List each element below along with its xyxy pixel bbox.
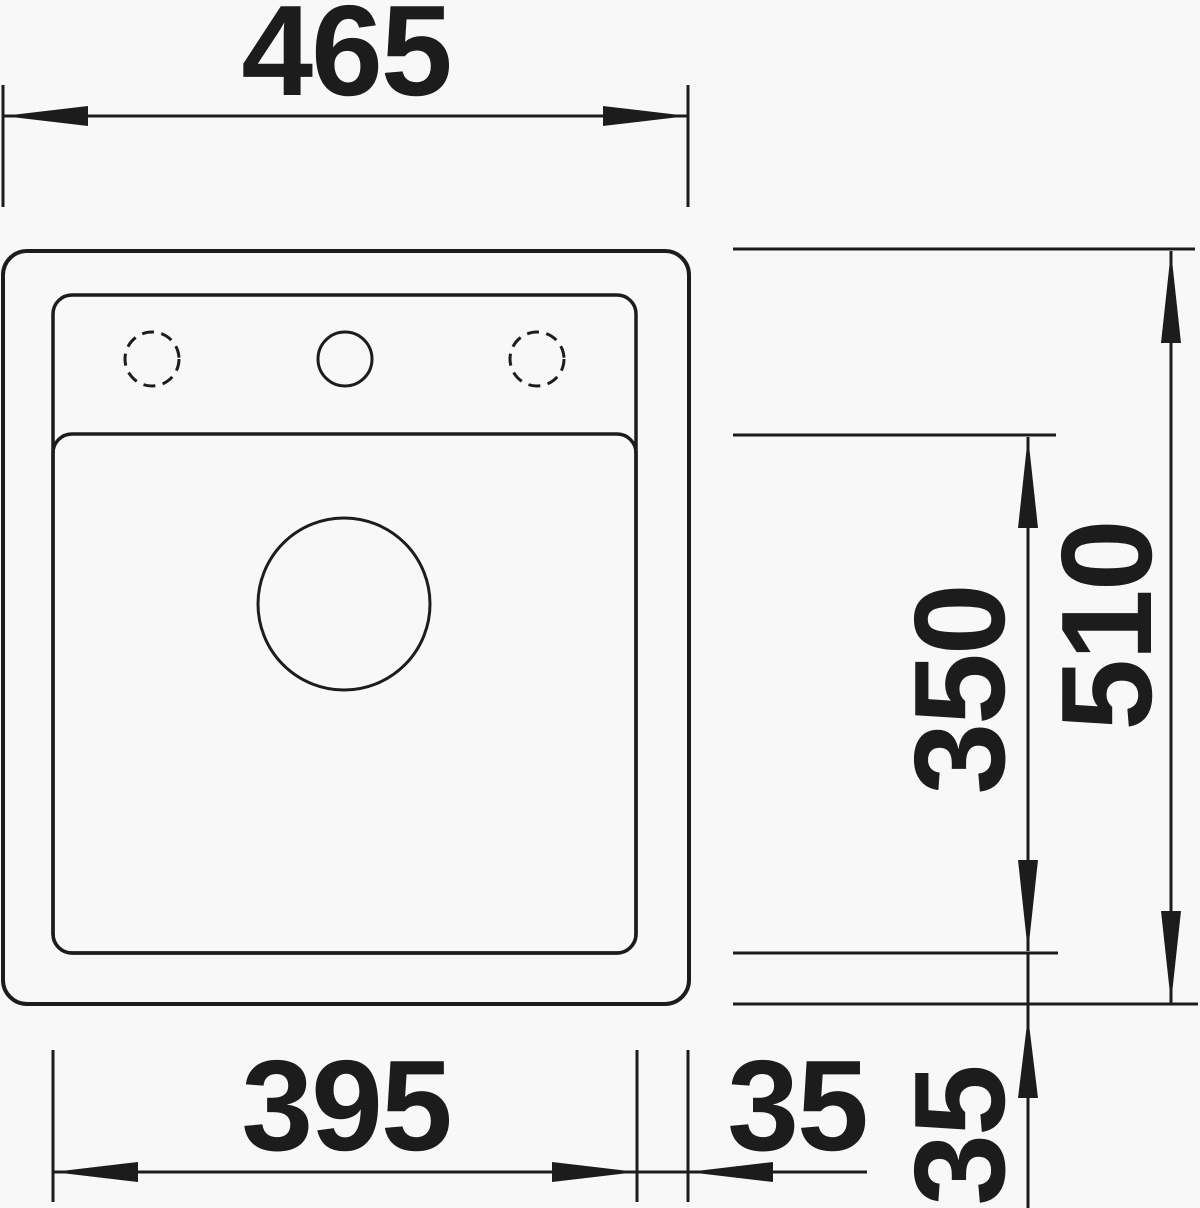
dim-label-bowl-width: 395 xyxy=(241,1034,450,1178)
arrowhead-down-icon xyxy=(1161,911,1181,1003)
sink-outline-group xyxy=(3,251,689,1004)
dim-bowl-depth: 350 xyxy=(733,435,1058,953)
arrowhead-up-icon xyxy=(1018,436,1038,528)
sink-rim-inner-edge xyxy=(53,295,636,953)
arrowhead-up-icon xyxy=(1161,251,1181,343)
sink-dimension-drawing: 465 510 350 35 xyxy=(0,0,1200,1208)
dim-label-rim-offset-bottom: 35 xyxy=(888,1066,1032,1206)
arrowhead-right-icon xyxy=(552,1162,637,1182)
dim-label-overall-width: 465 xyxy=(241,0,450,123)
sink-outer-edge xyxy=(3,251,689,1004)
dim-overall-width: 465 xyxy=(3,0,688,207)
dim-label-rim-offset-right: 35 xyxy=(727,1034,867,1178)
dim-label-bowl-depth: 350 xyxy=(888,585,1032,794)
faucet-hole-center-icon xyxy=(318,332,372,386)
dim-rim-offset-bottom: 35 xyxy=(888,952,1038,1208)
dim-bottom-group: 395 35 xyxy=(53,1034,867,1202)
drain-hole-icon xyxy=(258,518,430,690)
arrowhead-left-icon xyxy=(53,1162,138,1182)
dim-label-overall-depth: 510 xyxy=(1035,521,1179,730)
technical-drawing-canvas: 465 510 350 35 xyxy=(0,0,1200,1208)
arrowhead-down-icon xyxy=(1018,860,1038,952)
arrowhead-right-icon xyxy=(603,106,688,126)
arrowhead-left-icon xyxy=(3,106,88,126)
bowl-outline xyxy=(53,434,636,953)
faucet-hole-left-optional-icon xyxy=(125,332,179,386)
faucet-hole-right-optional-icon xyxy=(510,332,564,386)
